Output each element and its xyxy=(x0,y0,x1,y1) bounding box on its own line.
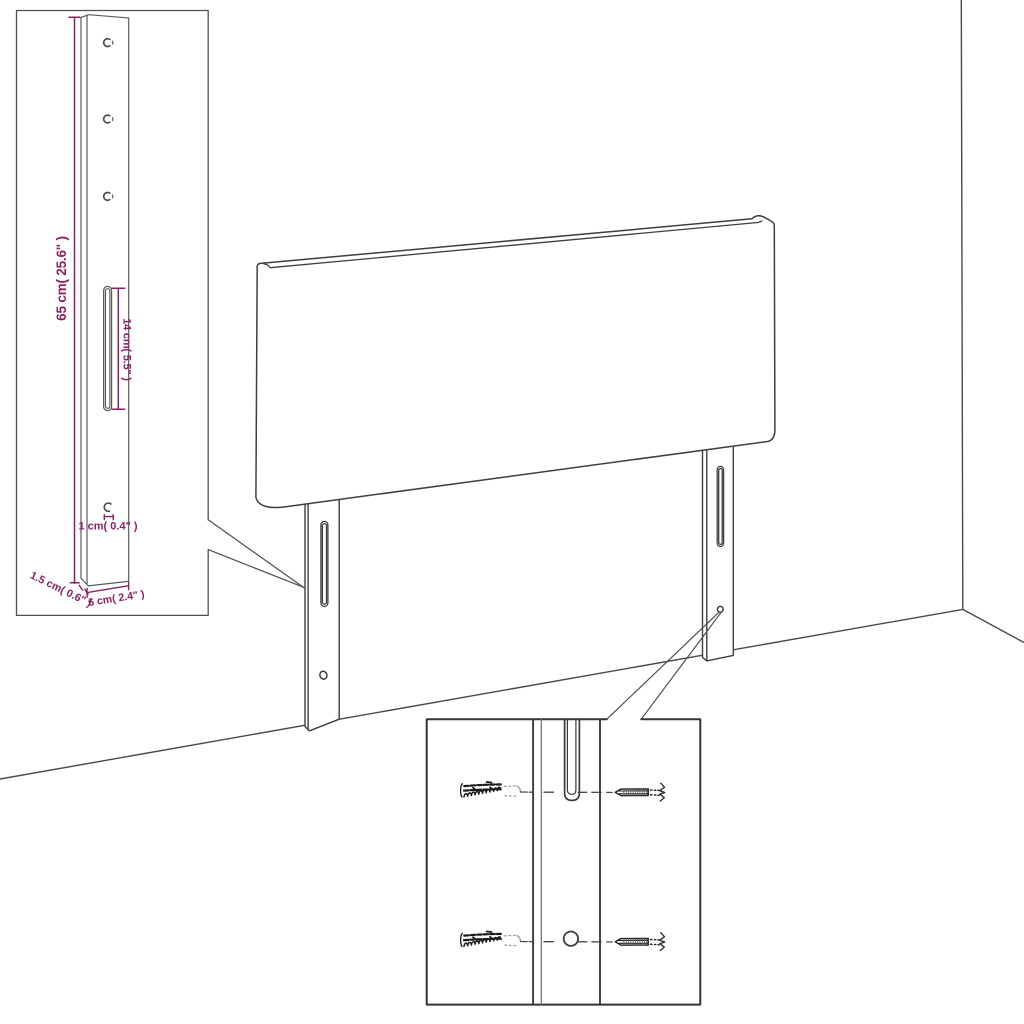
svg-text:14 cm( 5.5" ): 14 cm( 5.5" ) xyxy=(120,318,132,381)
svg-text:65 cm( 25.6" ): 65 cm( 25.6" ) xyxy=(54,236,69,321)
svg-text:1 cm( 0.4" ): 1 cm( 0.4" ) xyxy=(78,521,137,533)
